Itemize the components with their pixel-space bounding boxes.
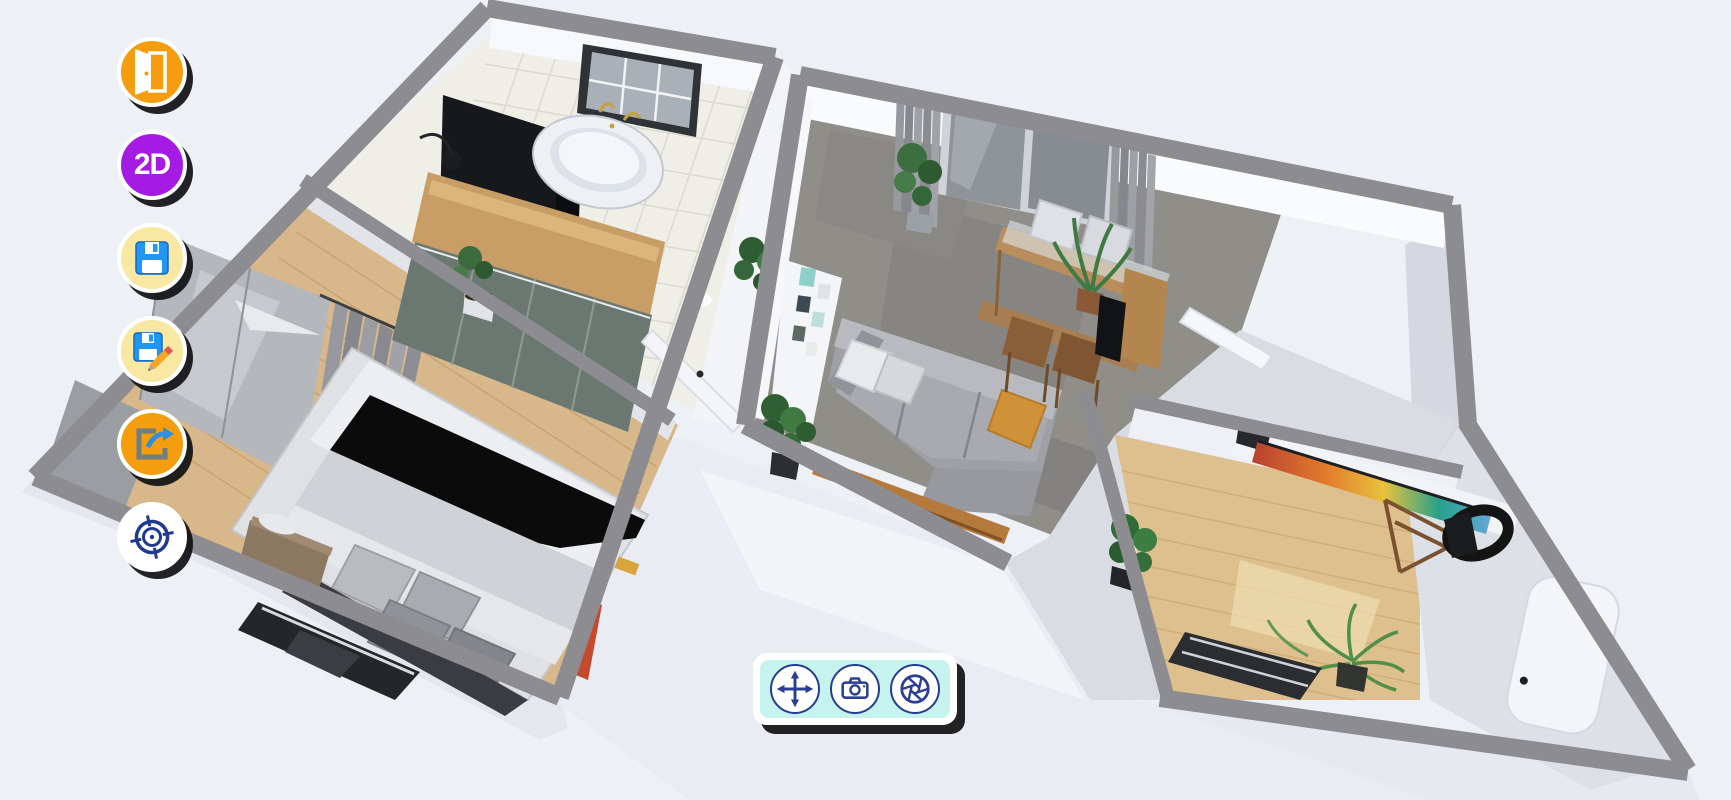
2d-view-button[interactable]: 2D: [117, 130, 187, 200]
camera-toolbar: [753, 653, 957, 725]
snapshot-button[interactable]: [830, 664, 880, 714]
center-view-button[interactable]: [117, 502, 187, 572]
camera-icon: [834, 668, 876, 710]
floppy-disk-pencil-icon: [126, 325, 178, 377]
share-arrow-icon: [126, 418, 178, 470]
render-button[interactable]: [890, 664, 940, 714]
crosshair-target-icon: [126, 511, 178, 563]
door-icon: [126, 46, 178, 98]
floppy-disk-icon: [126, 232, 178, 284]
2d-label: 2D: [134, 148, 170, 182]
move-arrows-icon: [774, 668, 816, 710]
move-button[interactable]: [770, 664, 820, 714]
camera-toolbar-tray: [760, 660, 950, 718]
save-as-button[interactable]: [117, 316, 187, 386]
left-toolbar: 2D: [117, 37, 187, 572]
export-button[interactable]: [117, 409, 187, 479]
door-button[interactable]: [117, 37, 187, 107]
aperture-icon: [894, 668, 936, 710]
save-button[interactable]: [117, 223, 187, 293]
